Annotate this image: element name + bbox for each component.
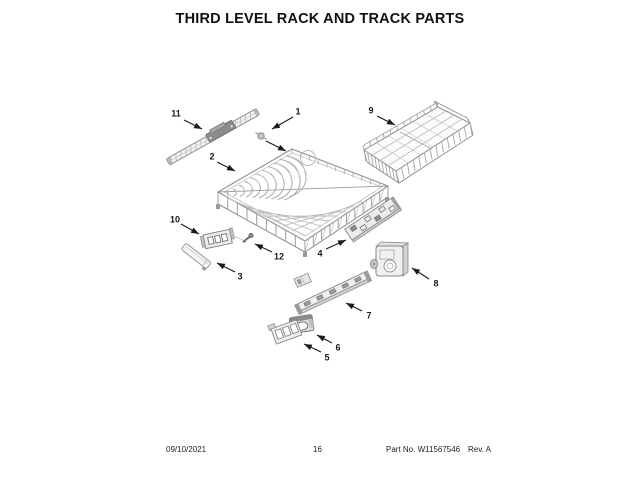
part-5-bracket-drawing xyxy=(268,316,302,345)
rail-clip-drawing xyxy=(294,273,311,287)
footer-page-number: 16 xyxy=(313,446,322,454)
exploded-view-drawing xyxy=(0,0,640,480)
footer-part-number: Part No. W11567546 xyxy=(386,446,460,454)
part-1-clip-drawing xyxy=(256,133,267,140)
part-10-bracket-drawing xyxy=(200,228,235,250)
footer-date: 09/10/2021 xyxy=(166,446,206,454)
part-11-track-slide-drawing xyxy=(164,105,259,165)
footer-revision: Rev. A xyxy=(468,446,491,454)
part-9-basket-drawing xyxy=(363,101,473,183)
parts-catalog-page: THIRD LEVEL RACK AND TRACK PARTS xyxy=(0,0,640,480)
part-8-adjuster-housing-drawing xyxy=(371,242,409,276)
part-2-rack-drawing xyxy=(216,149,389,257)
